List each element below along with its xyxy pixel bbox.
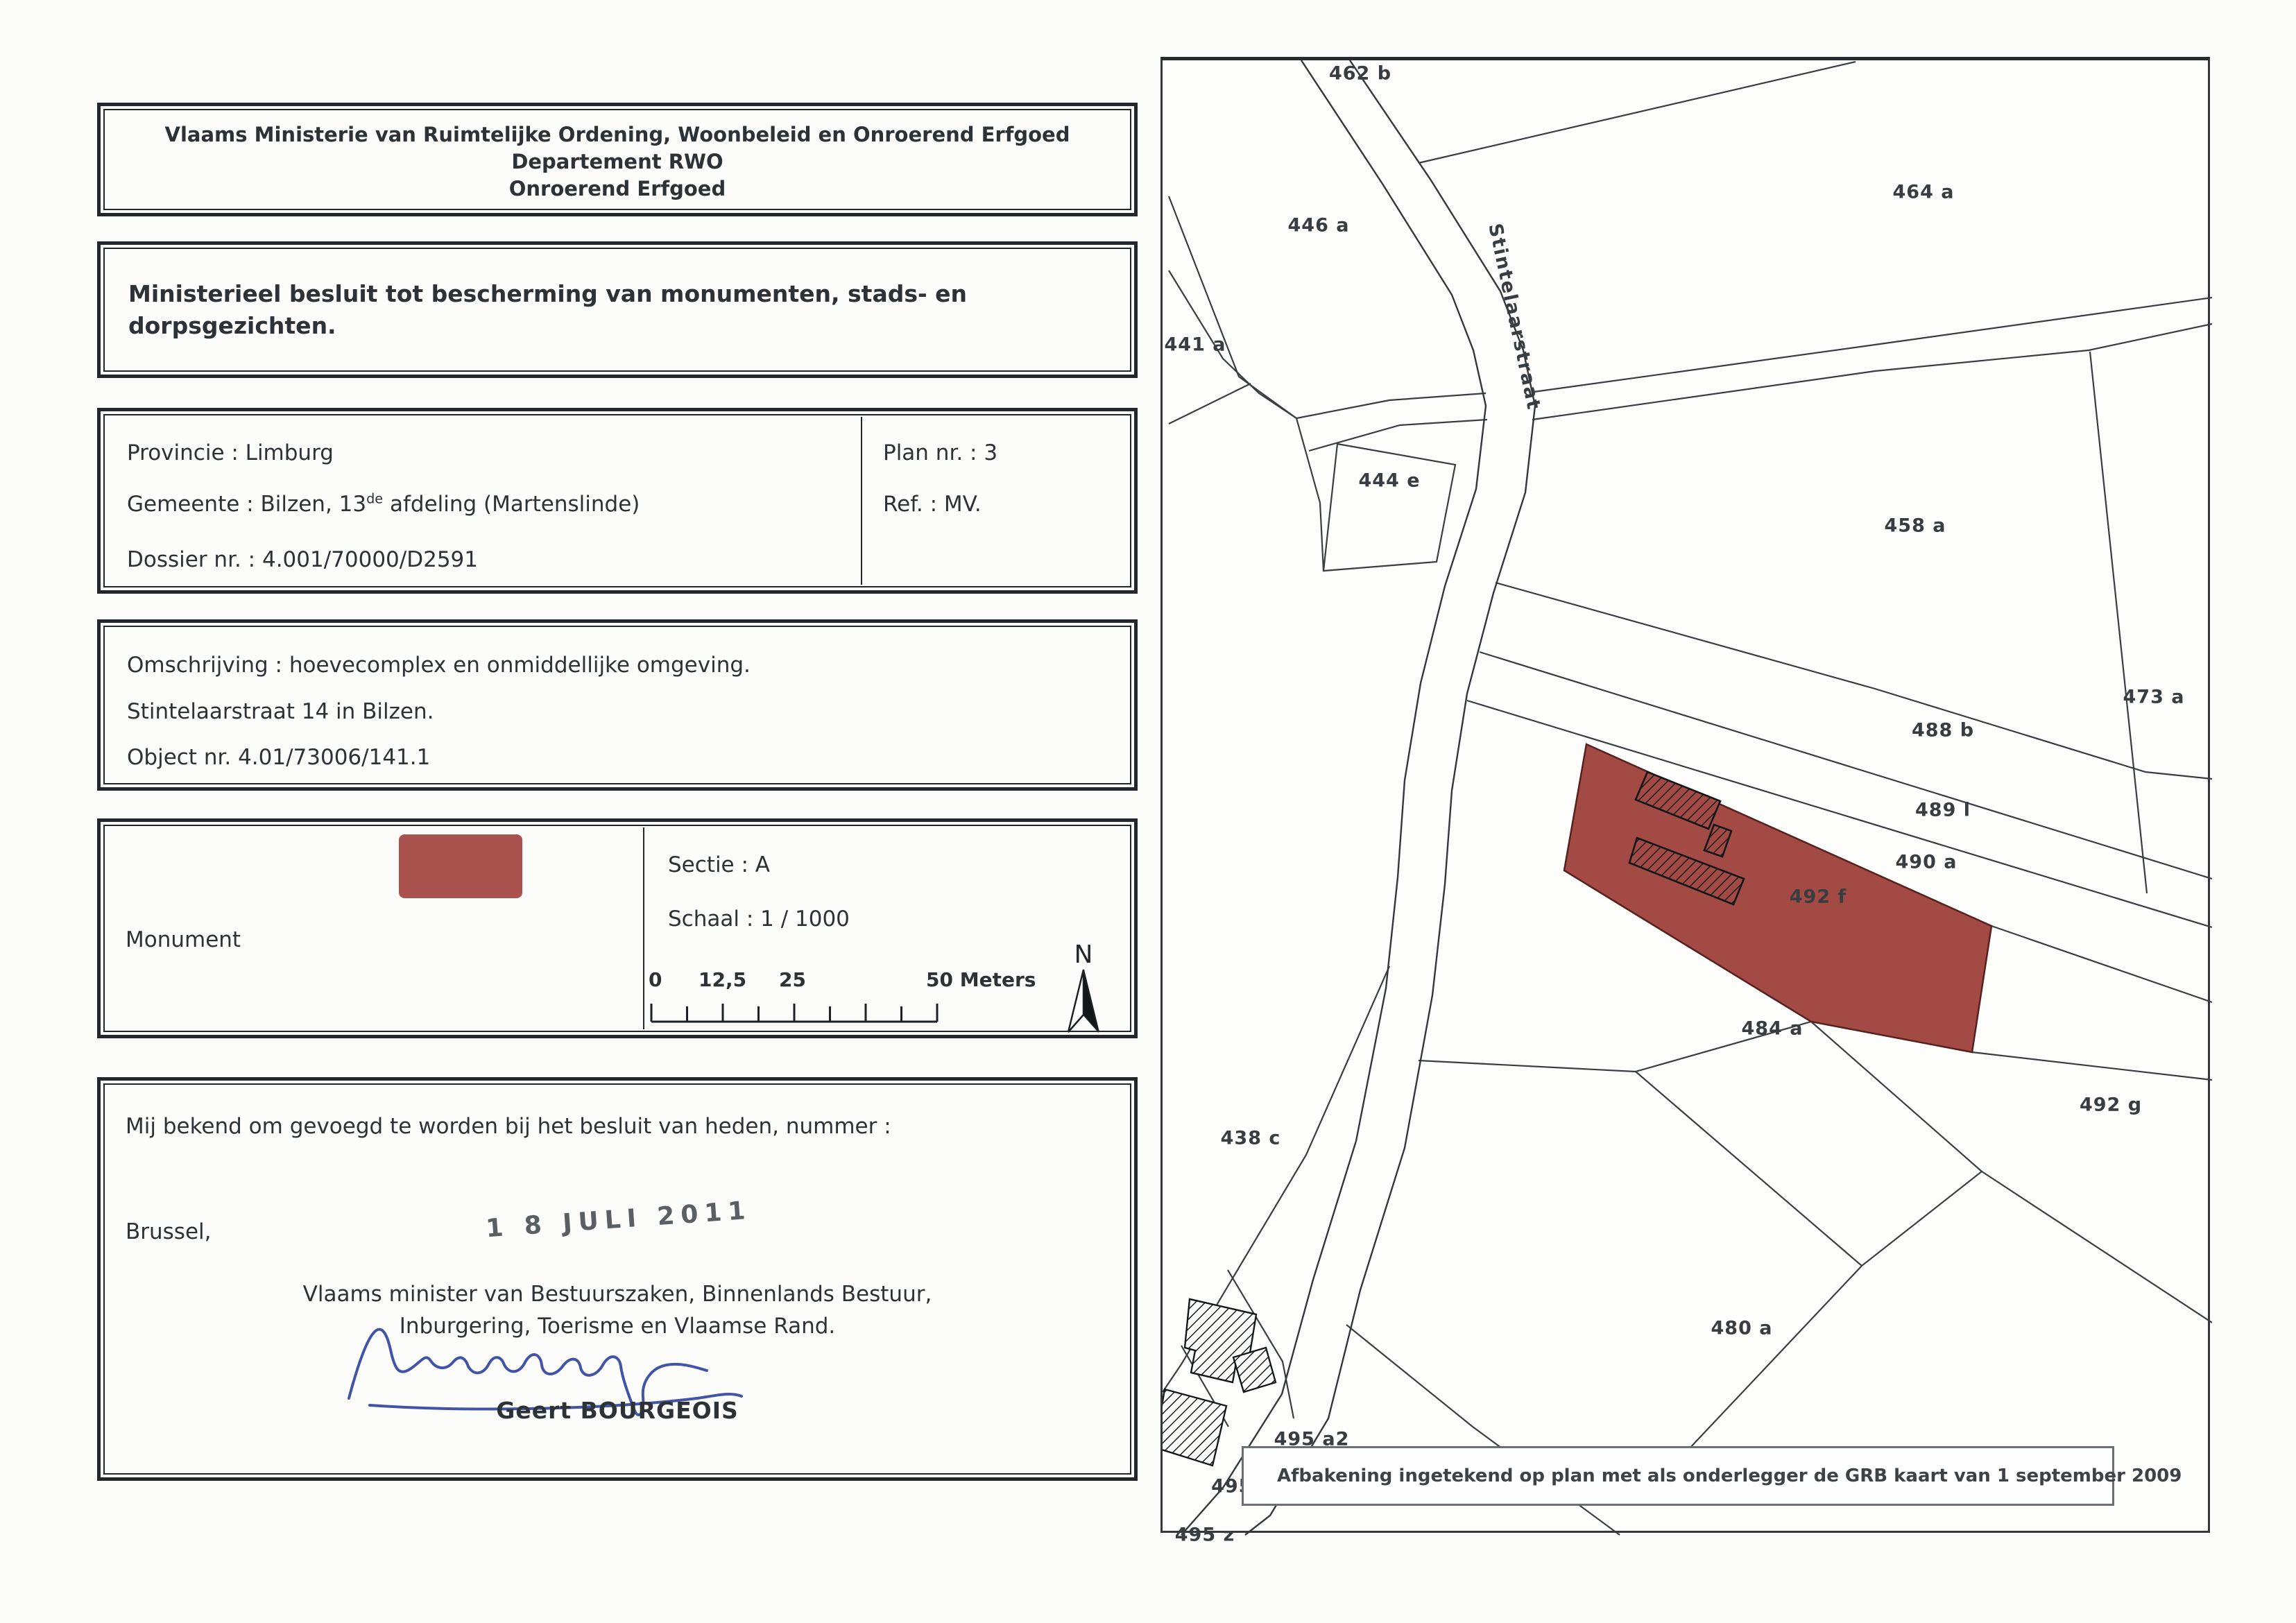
parcel-label: 444 e <box>1358 470 1420 492</box>
map-caption-box: Afbakening ingetekend op plan met als on… <box>1242 1446 2114 1506</box>
provincie-value: Provincie : Limburg <box>127 438 334 469</box>
info-box-divider <box>861 417 862 585</box>
ministry-name: Vlaams Ministerie van Ruimtelijke Ordeni… <box>101 121 1134 148</box>
ref-value: Ref. : MV. <box>883 489 982 520</box>
parcel-label: 462 b <box>1329 63 1391 85</box>
agency-name: Onroerend Erfgoed <box>101 175 1134 203</box>
scanned-decree-page: Vlaams Ministerie van Ruimtelijke Ordeni… <box>0 0 2296 1623</box>
legend-label: Monument <box>126 925 241 956</box>
plan-nr-value: Plan nr. : 3 <box>883 438 997 469</box>
parcel-label: 495 z <box>1175 1525 1235 1546</box>
parcel-label: 488 b <box>1912 720 1974 741</box>
parcel-label: 438 c <box>1221 1128 1281 1149</box>
parcel-label: 492 g <box>2080 1094 2142 1116</box>
scale-label-0: 0 <box>649 966 662 995</box>
department-name: Departement RWO <box>101 148 1134 175</box>
decree-title: Ministerieel besluit tot bescherming van… <box>101 245 1134 342</box>
parcel-label: 480 a <box>1711 1318 1773 1339</box>
signature-box: Mij bekend om gevoegd te worden bij het … <box>97 1077 1138 1481</box>
cadastral-map: Stintelaarstraat 462 b464 a446 a441 a444… <box>1160 57 2210 1533</box>
map-drawing <box>1163 60 2212 1536</box>
north-letter: N <box>1074 943 1093 969</box>
omschrijving-line3: Object nr. 4.01/73006/141.1 <box>127 735 1160 781</box>
date-stamp: 1 8 JULI 2011 <box>485 1193 753 1248</box>
decree-title-box: Ministerieel besluit tot bescherming van… <box>97 241 1138 378</box>
omschrijving-box: Omschrijving : hoevecomplex en onmiddell… <box>97 619 1138 791</box>
province-info-box: Provincie : Limburg Gemeente : Bilzen, 1… <box>97 408 1138 594</box>
city-line: Brussel, <box>126 1217 212 1248</box>
parcel-label: 489 l <box>1915 800 1971 821</box>
parcel-label: 441 a <box>1165 334 1226 356</box>
dossier-value: Dossier nr. : 4.001/70000/D2591 <box>127 544 478 576</box>
legend-box: Monument Sectie : A Schaal : 1 / 1000 0 … <box>97 818 1138 1038</box>
scale-label-25: 25 <box>779 966 806 995</box>
parcel-label: 458 a <box>1885 515 1946 537</box>
omschrijving-line2: Stintelaarstraat 14 in Bilzen. <box>127 689 1160 735</box>
monument-color-swatch <box>399 834 522 898</box>
gemeente-value: Gemeente : Bilzen, 13de afdeling (Marten… <box>127 489 640 520</box>
north-arrow-icon: N <box>1052 943 1115 1037</box>
bekend-line: Mij bekend om gevoegd te worden bij het … <box>126 1111 891 1142</box>
scale-label-50-meters: 50 Meters <box>926 966 1036 995</box>
parcel-label: 492 f <box>1790 886 1847 908</box>
signee-name: Geert BOURGEOIS <box>101 1394 1134 1427</box>
scale-label-12-5: 12,5 <box>699 966 746 995</box>
sectie-value: Sectie : A <box>668 850 770 881</box>
parcel-label: 446 a <box>1288 215 1350 237</box>
parcel-label: 464 a <box>1893 182 1955 203</box>
parcel-label: 473 a <box>2123 687 2185 708</box>
omschrijving-line1: Omschrijving : hoevecomplex en onmiddell… <box>127 642 1160 689</box>
scale-ruler <box>650 997 948 1024</box>
parcel-label: 490 a <box>1896 852 1957 873</box>
map-caption-text: Afbakening ingetekend op plan met als on… <box>1277 1466 2182 1486</box>
legend-box-divider <box>643 827 644 1029</box>
schaal-value: Schaal : 1 / 1000 <box>668 904 850 935</box>
neighbour-buildings <box>1163 1299 1276 1466</box>
ministry-header-box: Vlaams Ministerie van Ruimtelijke Ordeni… <box>97 103 1138 216</box>
parcel-label: 484 a <box>1742 1018 1804 1040</box>
